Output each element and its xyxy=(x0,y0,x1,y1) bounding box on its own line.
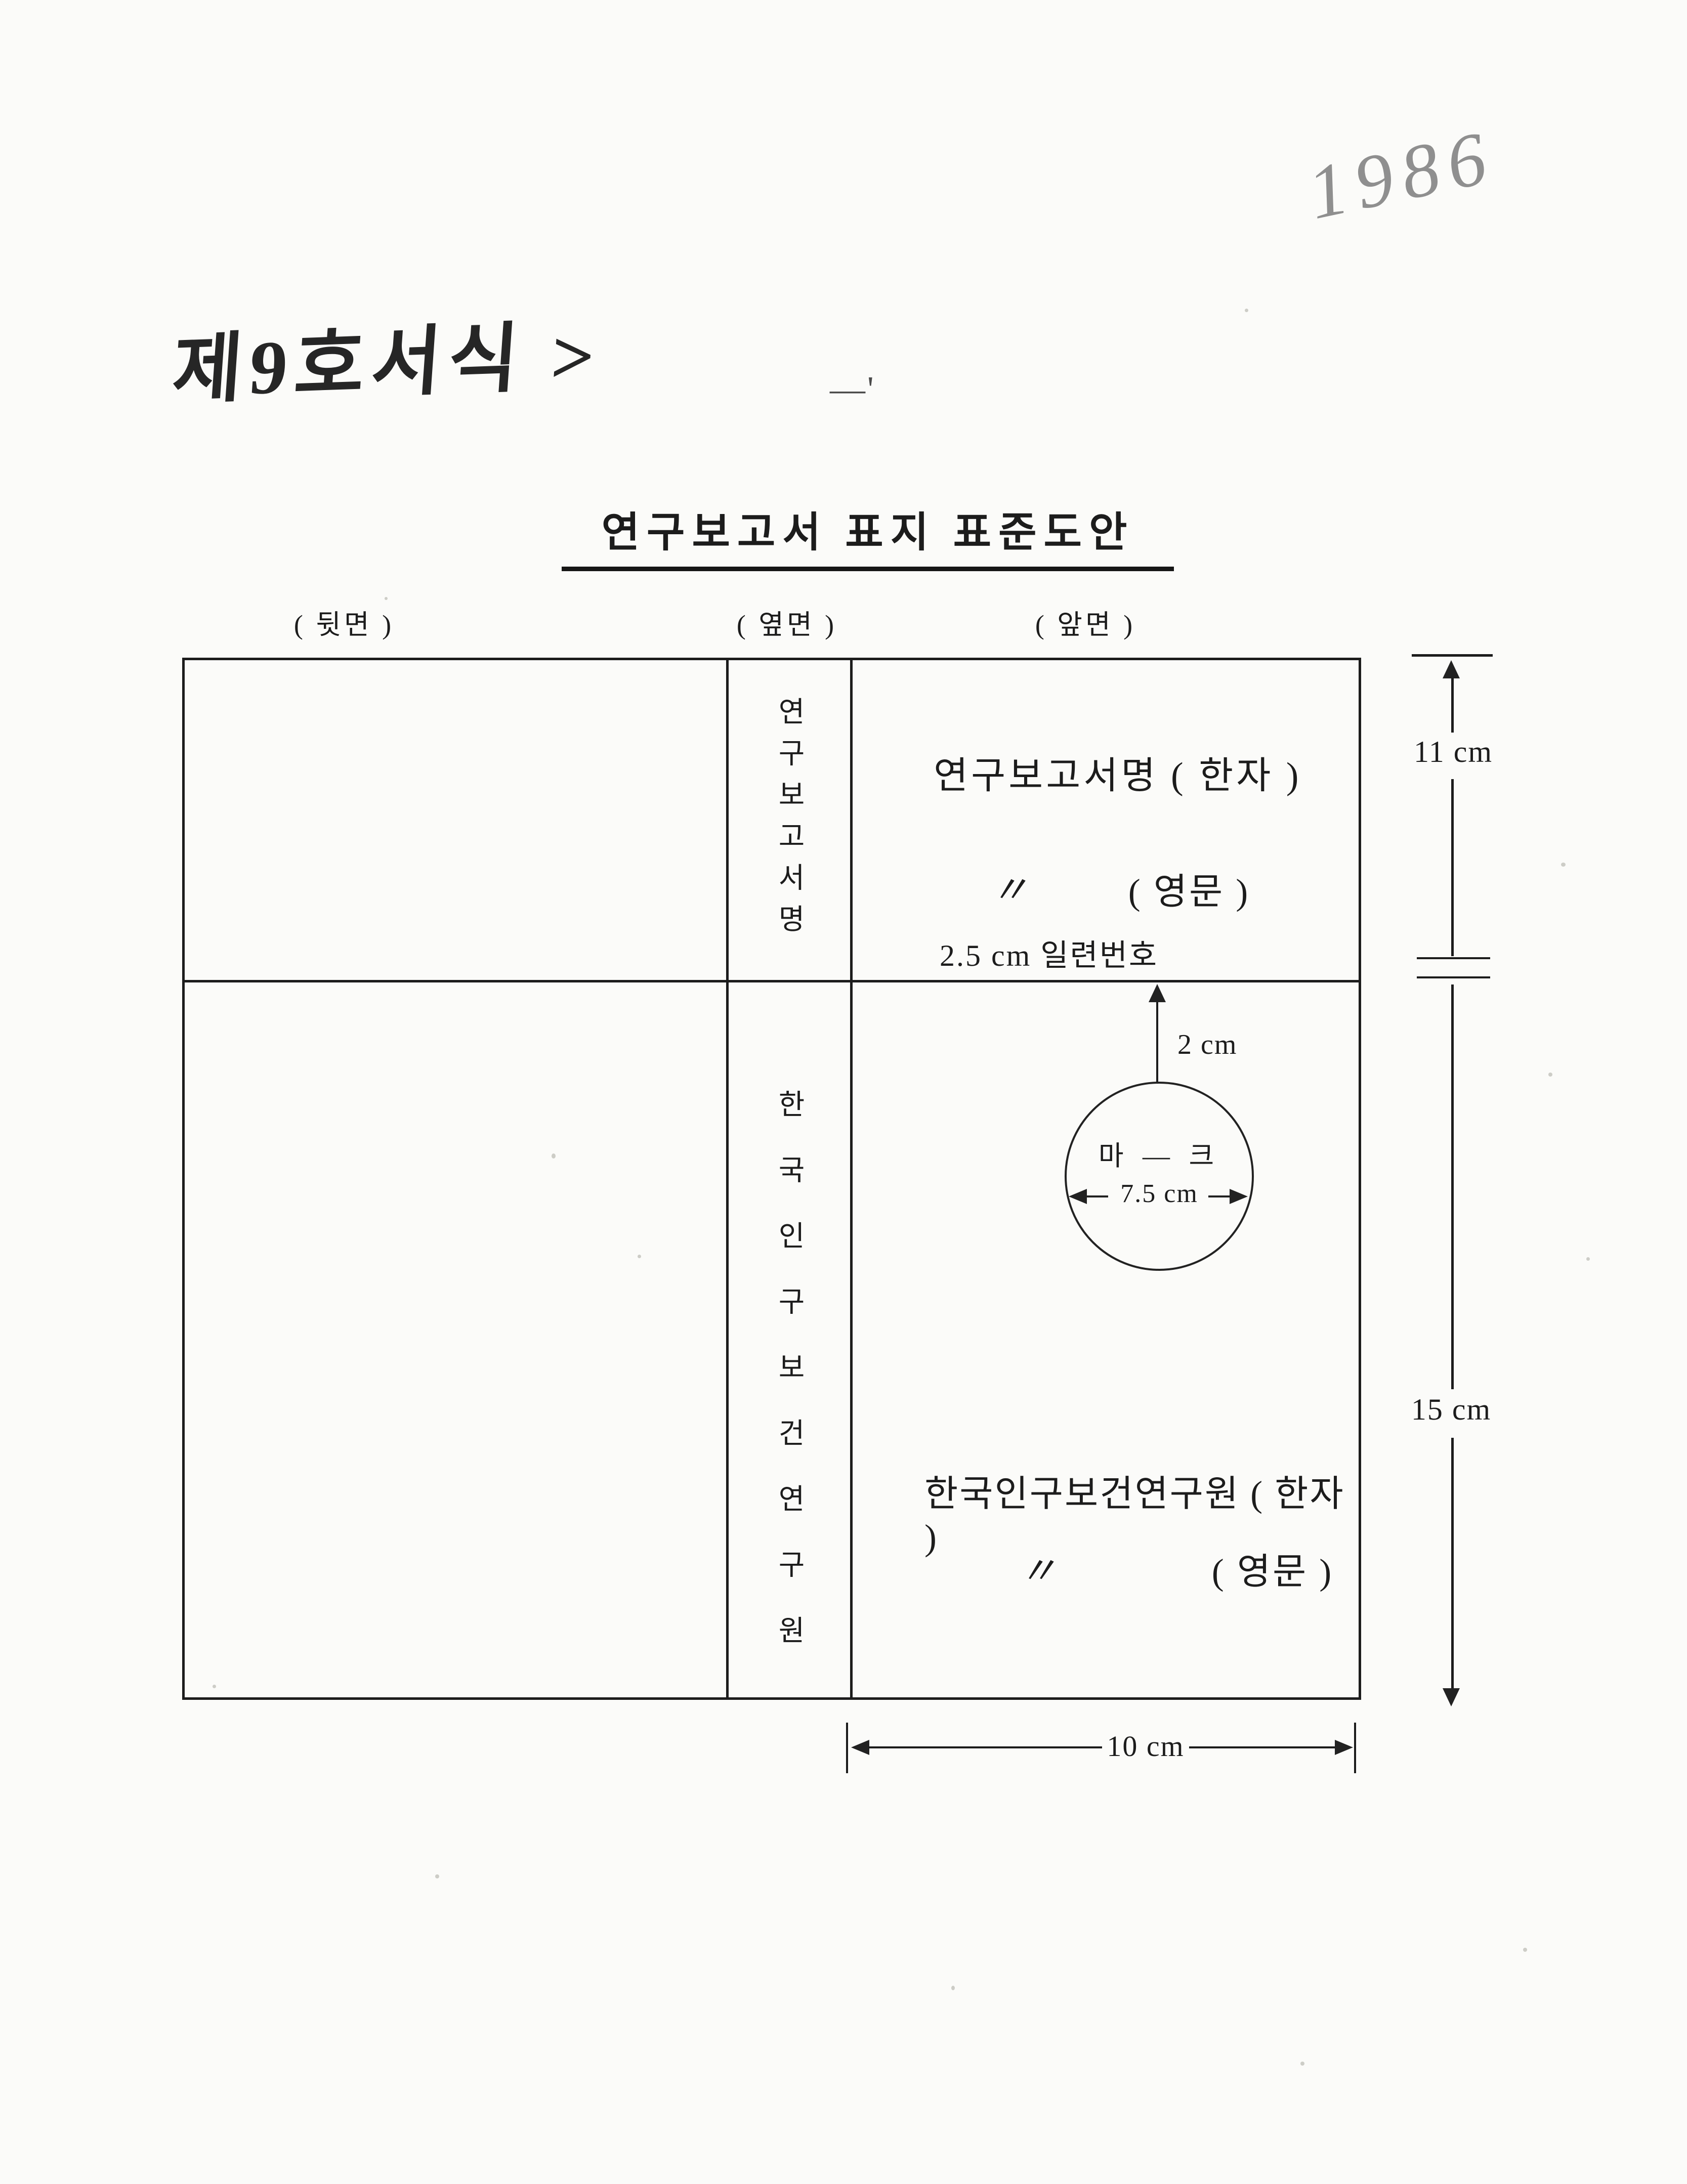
diameter-line-left xyxy=(1084,1195,1108,1197)
mark-gap-label: 2 cm xyxy=(1177,1029,1237,1061)
dim-width-tick-left xyxy=(846,1723,848,1773)
institute-mark-circle: 마 ― 크 7.5 cm xyxy=(1065,1082,1254,1271)
dim-break-tick-a xyxy=(1417,957,1490,959)
panel-label-front: ( 앞면 ) xyxy=(1004,602,1166,642)
mark-diameter-label: 7.5 cm xyxy=(1106,1179,1212,1209)
dim-width-line-left xyxy=(868,1746,1102,1748)
mark-gap-arrow-line xyxy=(1156,994,1158,1083)
spine-right-line xyxy=(850,660,853,1697)
page-title: 연구보고서 표지 표준도안 xyxy=(562,498,1174,571)
scan-speck xyxy=(1245,309,1248,312)
dim-upper-line-b xyxy=(1451,779,1454,956)
front-report-title-english: ( 영문 ) xyxy=(1108,862,1270,915)
scan-speck xyxy=(1548,1073,1552,1077)
scan-speck xyxy=(1523,1948,1527,1952)
scan-speck xyxy=(951,1986,955,1990)
handwritten-year-note: 1986 xyxy=(1300,113,1503,237)
diameter-line-right xyxy=(1208,1195,1233,1197)
panel-label-side: ( 옆면 ) xyxy=(706,602,868,642)
serial-number-note: 2.5 cm 일련번호 xyxy=(940,931,1158,975)
scanned-document-page: 1986 제9호서식 > ―' 연구보고서 표지 표준도안 ( 뒷면 ) ( 옆… xyxy=(0,0,1687,2184)
scan-speck xyxy=(1300,2062,1304,2066)
spine-report-title-vertical: 연구보고서명 xyxy=(769,697,810,946)
spine-org-name-vertical: 한국인구보건연구원 xyxy=(769,1089,810,1681)
scan-speck xyxy=(385,597,388,600)
dim-upper-line-a xyxy=(1451,678,1454,733)
scan-speck xyxy=(213,1685,216,1688)
dim-width-arrowhead-left xyxy=(851,1740,869,1755)
handwritten-form-note: 제9호서식 > xyxy=(170,293,606,418)
panel-label-back: ( 뒷면 ) xyxy=(263,602,425,642)
mark-label: 마 ― 크 xyxy=(1067,1133,1252,1173)
dim-upper-arrowhead-up xyxy=(1443,660,1460,678)
dim-upper-top-cap xyxy=(1412,654,1493,657)
dim-break-tick-b xyxy=(1417,976,1490,978)
dim-lower-height-label: 15 cm xyxy=(1396,1392,1507,1427)
front-org-name-ditto-mark: 〃 xyxy=(1019,1539,1058,1595)
front-report-title-hanja: 연구보고서명 ( 한자 ) xyxy=(934,745,1301,799)
stray-pen-mark: ―' xyxy=(830,369,876,410)
diameter-arrowhead-right xyxy=(1230,1189,1248,1204)
scan-speck xyxy=(435,1874,439,1878)
scan-speck xyxy=(1561,863,1566,867)
cover-diagram-box: 연구보고서명 한국인구보건연구원 연구보고서명 ( 한자 ) 〃 ( 영문 ) … xyxy=(182,658,1361,1700)
dim-width-line-right xyxy=(1189,1746,1336,1748)
front-org-name-english: ( 영문 ) xyxy=(1192,1541,1354,1595)
front-report-title-ditto-mark: 〃 xyxy=(990,859,1030,914)
scan-speck xyxy=(638,1255,641,1258)
dim-lower-line-b xyxy=(1451,1438,1454,1688)
mark-gap-arrowhead-up xyxy=(1149,984,1166,1002)
dim-width-arrowhead-right xyxy=(1335,1740,1353,1755)
scan-speck xyxy=(552,1153,556,1159)
dim-upper-height-label: 11 cm xyxy=(1398,735,1509,769)
dim-lower-arrowhead-down xyxy=(1443,1688,1460,1706)
scan-speck xyxy=(1586,1257,1590,1261)
dim-width-tick-right xyxy=(1354,1723,1356,1773)
spine-left-line xyxy=(726,660,729,1697)
dim-front-width-label: 10 cm xyxy=(1102,1729,1189,1763)
horizontal-divider-line xyxy=(185,980,1359,982)
dim-lower-line-a xyxy=(1451,984,1454,1389)
